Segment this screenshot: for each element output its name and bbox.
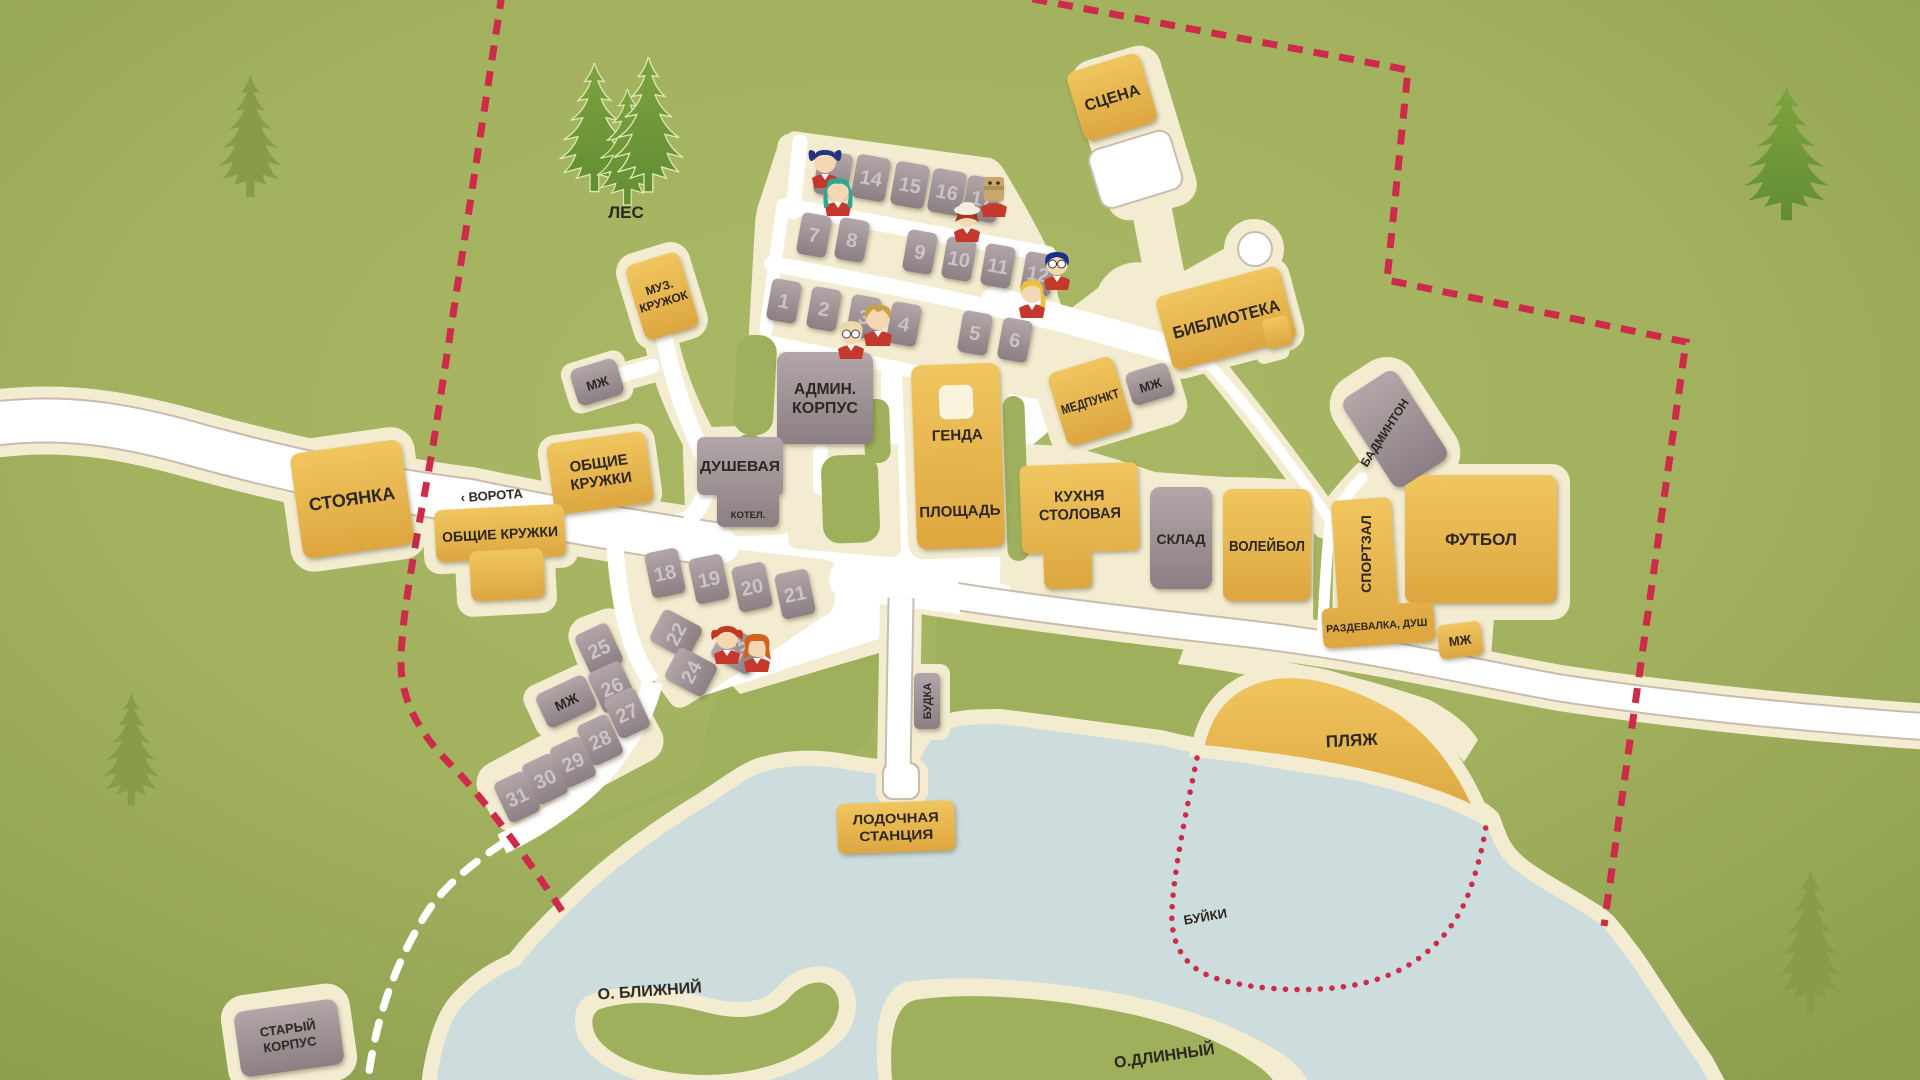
svg-text:КОРПУС: КОРПУС — [792, 400, 858, 417]
svg-text:15: 15 — [897, 173, 923, 199]
svg-text:20: 20 — [739, 575, 765, 601]
svg-text:18: 18 — [652, 561, 678, 587]
svg-text:АДМИН.: АДМИН. — [794, 381, 856, 398]
svg-text:КУХНЯ: КУХНЯ — [1054, 487, 1105, 506]
svg-text:ФУТБОЛ: ФУТБОЛ — [1445, 530, 1517, 549]
svg-text:МЖ: МЖ — [1448, 632, 1472, 650]
svg-text:ПЛОЩАДЬ: ПЛОЩАДЬ — [919, 502, 1001, 522]
svg-text:19: 19 — [696, 567, 722, 593]
svg-text:ВОЛЕЙБОЛ: ВОЛЕЙБОЛ — [1229, 537, 1305, 555]
svg-text:КОТЕЛ.: КОТЕЛ. — [731, 510, 766, 521]
svg-text:ПЛЯЖ: ПЛЯЖ — [1325, 730, 1378, 752]
svg-text:21: 21 — [782, 582, 808, 608]
svg-text:СПОРТЗАЛ: СПОРТЗАЛ — [1358, 515, 1374, 593]
svg-text:10: 10 — [946, 247, 972, 273]
svg-text:ЛОДОЧНАЯ: ЛОДОЧНАЯ — [852, 810, 938, 828]
svg-text:ЛЕС: ЛЕС — [608, 203, 644, 222]
svg-text:СКЛАД: СКЛАД — [1156, 531, 1205, 547]
svg-text:ДУШЕВАЯ: ДУШЕВАЯ — [700, 459, 780, 475]
svg-text:СТОЛОВАЯ: СТОЛОВАЯ — [1039, 505, 1122, 525]
svg-text:ГЕНДА: ГЕНДА — [932, 426, 984, 445]
svg-text:БУДКА: БУДКА — [922, 683, 934, 719]
svg-text:СТАНЦИЯ: СТАНЦИЯ — [859, 827, 933, 845]
svg-text:16: 16 — [934, 180, 960, 206]
svg-text:11: 11 — [985, 254, 1010, 279]
